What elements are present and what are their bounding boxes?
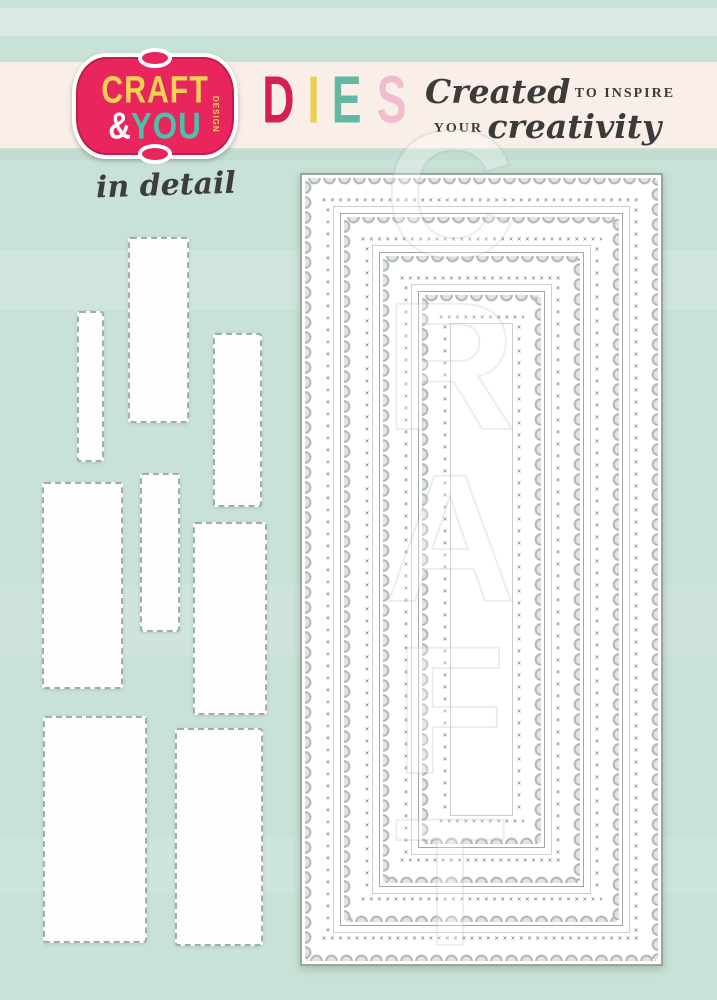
stitch-border: ✕✕✕✕✕✕✕✕✕✕✕✕✕✕✕✕✕✕✕✕✕✕✕✕✕✕✕✕✕✕✕✕✕✕✕✕✕✕✕✕… — [322, 196, 641, 205]
title-letter-i: I — [307, 65, 319, 136]
die-ring-3: ✕✕✕✕✕✕✕✕✕✕✕✕✕✕✕✕✕✕✕✕✕✕✕✕✕✕✕✕✕✕✕✕✕✕✕✕✕✕✕✕… — [379, 252, 584, 887]
die-piece — [128, 237, 189, 423]
stitch-border: ✕✕✕✕✕✕✕✕✕✕✕✕✕✕✕✕✕✕✕✕✕✕✕✕✕✕✕✕✕✕✕✕✕✕✕✕✕✕✕✕… — [440, 323, 449, 816]
scallop-border — [607, 219, 619, 920]
stitch-border: ✕✕✕✕✕✕✕✕✕✕✕✕✕✕✕✕✕✕✕✕✕✕✕✕✕✕✕✕✕✕✕✕✕✕✕✕✕✕✕✕… — [514, 323, 523, 816]
logo-design-text: DESIGN — [211, 96, 220, 133]
die-ring-2: ✕✕✕✕✕✕✕✕✕✕✕✕✕✕✕✕✕✕✕✕✕✕✕✕✕✕✕✕✕✕✕✕✕✕✕✕✕✕✕✕… — [340, 213, 623, 926]
tagline-line2: your creativity — [425, 107, 670, 146]
stitch-border: ✕✕✕✕✕✕✕✕✕✕✕✕✕✕✕✕✕✕✕✕✕✕✕✕✕✕✕✕✕✕✕✕✕✕✕✕✕✕✕✕… — [400, 856, 563, 865]
nested-die-set: ✕✕✕✕✕✕✕✕✕✕✕✕✕✕✕✕✕✕✕✕✕✕✕✕✕✕✕✕✕✕✕✕✕✕✕✕✕✕✕✕… — [300, 173, 663, 966]
scallop-border — [646, 180, 658, 959]
die-piece — [77, 311, 104, 462]
scallop-border — [305, 180, 317, 959]
scallop-border — [307, 178, 656, 190]
title-letter-s: S — [377, 65, 407, 136]
stitch-border: ✕✕✕✕✕✕✕✕✕✕✕✕✕✕✕✕✕✕✕✕✕✕✕✕✕✕✕✕✕✕✕✕✕✕✕✕✕✕✕✕… — [592, 245, 601, 894]
stitch-border: ✕✕✕✕✕✕✕✕✕✕✕✕✕✕✕✕✕✕✕✕✕✕✕✕✕✕✕✕✕✕✕✕✕✕✕✕✕✕✕✕… — [553, 284, 562, 855]
scallop-border — [568, 258, 580, 881]
title-letter-d: D — [262, 65, 294, 136]
stitch-border: ✕✕✕✕✕✕✕✕✕✕✕✕✕✕✕✕✕✕✕✕✕✕✕✕✕✕✕✕✕✕✕✕✕✕✕✕✕✕✕✕… — [361, 895, 602, 904]
die-ring-1: ✕✕✕✕✕✕✕✕✕✕✕✕✕✕✕✕✕✕✕✕✕✕✕✕✕✕✕✕✕✕✕✕✕✕✕✕✕✕✕✕… — [301, 174, 662, 965]
die-ring-4: ✕✕✕✕✕✕✕✕✕✕✕✕✕✕✕✕✕✕✕✕✕✕✕✕✕✕✕✕✕✕✕✕✕✕✕✕✕✕✕✕… — [418, 291, 545, 848]
stitch-border: ✕✕✕✕✕✕✕✕✕✕✕✕✕✕✕✕✕✕✕✕✕✕✕✕✕✕✕✕✕✕✕✕✕✕✕✕✕✕✕✕… — [401, 284, 410, 855]
product-image: CRAFT &YOU DESIGN DIES Created to inspir… — [0, 0, 717, 1000]
in-detail-label: in detail — [95, 166, 236, 206]
stitch-border: ✕✕✕✕✕✕✕✕✕✕✕✕✕✕✕✕✕✕✕✕✕✕✕✕✕✕✕✕✕✕✕✕✕✕✕✕✕✕✕✕… — [400, 274, 563, 283]
background-texture — [0, 8, 717, 36]
stitch-border: ✕✕✕✕✕✕✕✕✕✕✕✕✕✕✕✕✕✕✕✕✕✕✕✕✕✕✕✕✕✕✕✕✕✕✕✕✕✕✕✕… — [323, 206, 332, 933]
stitch-border: ✕✕✕✕✕✕✕✕✕✕✕✕✕✕✕✕✕✕✕✕✕✕✕✕✕✕✕✕✕✕✕✕✕✕✕✕✕✕✕✕… — [361, 235, 602, 244]
scallop-border — [346, 217, 617, 229]
logo-ampersand: & — [108, 105, 131, 146]
logo-craft-text: CRAFT — [82, 70, 227, 109]
stitch-border: ✕✕✕✕✕✕✕✕✕✕✕✕✕✕✕✕✕✕✕✕✕✕✕✕✕✕✕✕✕✕✕✕✕✕✕✕✕✕✕✕… — [322, 934, 641, 943]
scallop-border — [346, 910, 617, 922]
die-piece — [193, 522, 267, 715]
scallop-border — [422, 297, 434, 842]
die-piece — [213, 333, 262, 507]
scallop-border — [424, 295, 539, 307]
stitch-border: ✕✕✕✕✕✕✕✕✕✕✕✕✕✕✕✕✕✕✕✕✕✕✕✕✕✕✕✕✕✕✕✕✕✕✕✕✕✕✕✕… — [631, 206, 640, 933]
stitch-border: ✕✕✕✕✕✕✕✕✕✕✕✕✕✕✕✕✕✕✕✕✕✕✕✕✕✕✕✕✕✕✕✕✕✕✕✕✕✕✕✕… — [439, 817, 524, 826]
scallop-border — [385, 256, 578, 268]
scallop-border — [383, 258, 395, 881]
die-piece — [42, 482, 123, 689]
brand-logo: CRAFT &YOU DESIGN — [72, 53, 238, 159]
stitch-border: ✕✕✕✕✕✕✕✕✕✕✕✕✕✕✕✕✕✕✕✕✕✕✕✕✕✕✕✕✕✕✕✕✕✕✕✕✕✕✕✕… — [439, 313, 524, 322]
scallop-border — [307, 949, 656, 961]
scallop-border — [344, 219, 356, 920]
scallop-border — [529, 297, 541, 842]
scallop-border — [385, 871, 578, 883]
title-letter-e: E — [332, 65, 362, 136]
die-piece — [140, 473, 180, 632]
die-piece — [43, 716, 147, 943]
product-title: DIES — [256, 68, 417, 134]
stitch-border: ✕✕✕✕✕✕✕✕✕✕✕✕✕✕✕✕✕✕✕✕✕✕✕✕✕✕✕✕✕✕✕✕✕✕✕✕✕✕✕✕… — [362, 245, 371, 894]
brand-tagline: Created to inspire your creativity — [425, 72, 670, 146]
logo-you-text: &YOU — [80, 105, 230, 148]
tagline-line1: Created to inspire — [425, 72, 670, 111]
die-piece — [175, 728, 263, 946]
scallop-border — [424, 832, 539, 844]
